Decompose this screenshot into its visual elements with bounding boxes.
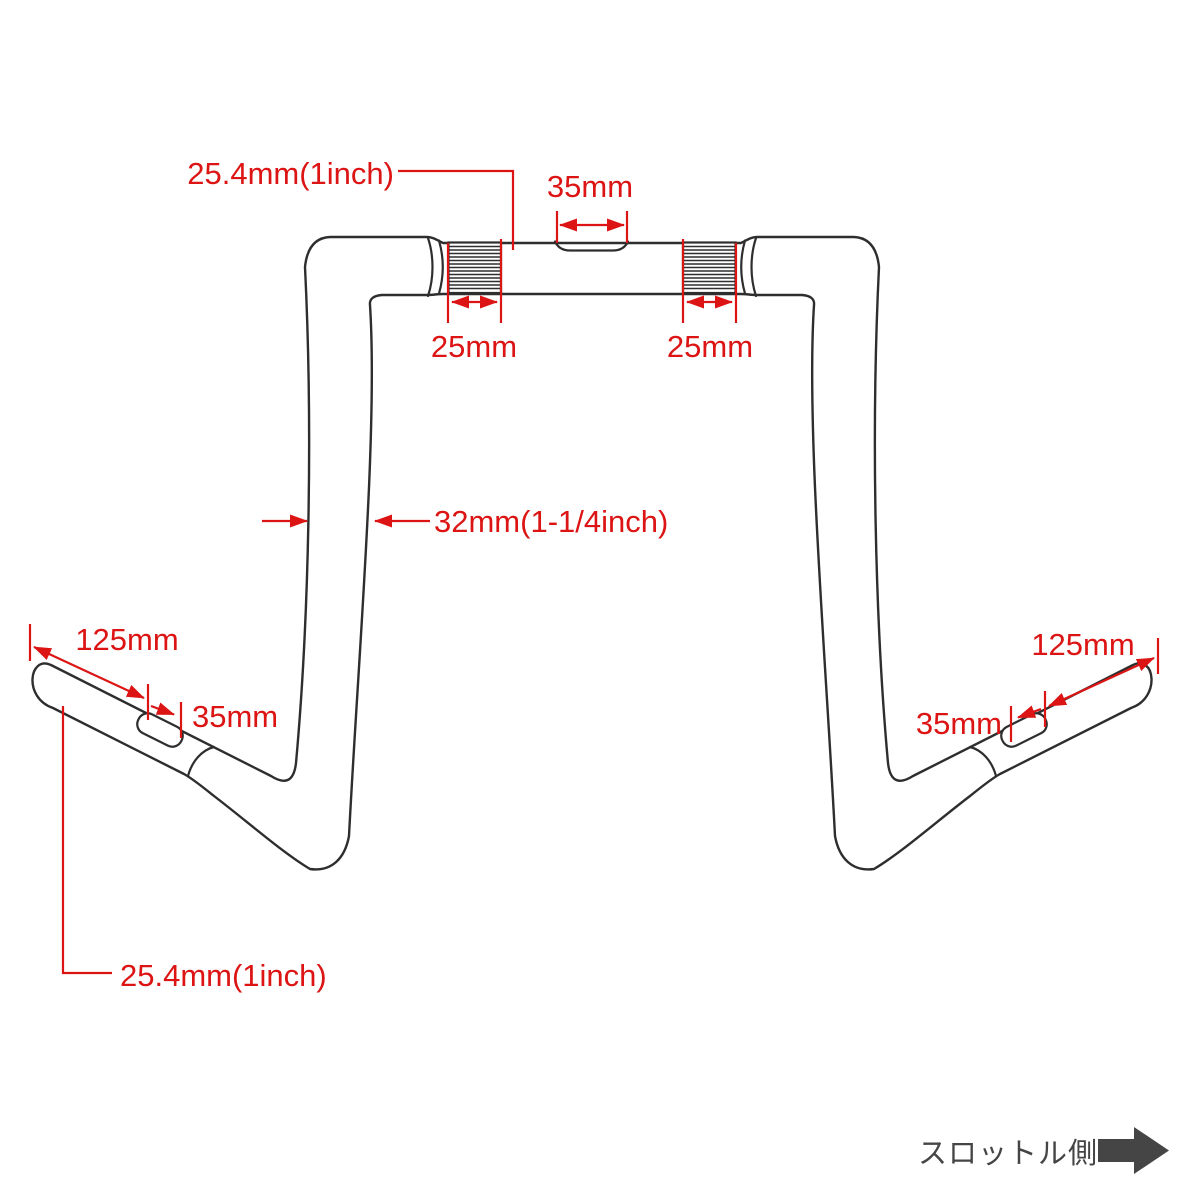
dim-label-grip-offset-left: 35mm: [192, 699, 278, 734]
dim-label-grip-diameter: 25.4mm(1inch): [120, 958, 327, 993]
dim-label-clamp-diameter: 25.4mm(1inch): [187, 156, 394, 191]
dim-label-grip-length-right: 125mm: [1031, 627, 1134, 662]
dim-center-notch-width: 35mm: [547, 169, 633, 243]
handlebar-outline: [32, 237, 1151, 869]
knurl-right: [683, 243, 736, 294]
throttle-side-arrow-icon: [1098, 1127, 1169, 1174]
dim-label-knurl-left: 25mm: [431, 329, 517, 364]
dim-label-grip-offset-right: 35mm: [916, 706, 1002, 741]
knurl-right-hatch: [684, 247, 736, 289]
throttle-side-label: スロットル側: [918, 1137, 1098, 1170]
handlebar-drawing: [32, 237, 1151, 869]
knurl-left-hatch: [449, 247, 501, 289]
dim-label-center-notch: 35mm: [547, 169, 633, 204]
diagram-canvas: 25.4mm(1inch) 35mm 25mm 25mm 32mm(1-1/4i…: [0, 0, 1200, 1200]
grip-diameter-leader-line: [63, 706, 112, 973]
throttle-side-note: スロットル側: [918, 1127, 1169, 1174]
knurl-left: [449, 243, 502, 294]
dim-label-grip-length-left: 125mm: [75, 622, 178, 657]
grip-left-offset-arrow: [151, 706, 174, 715]
dim-label-riser-diameter: 32mm(1-1/4inch): [434, 504, 668, 539]
dim-label-knurl-right: 25mm: [667, 329, 753, 364]
handlebar-dimension-diagram: 25.4mm(1inch) 35mm 25mm 25mm 32mm(1-1/4i…: [0, 0, 1200, 1200]
